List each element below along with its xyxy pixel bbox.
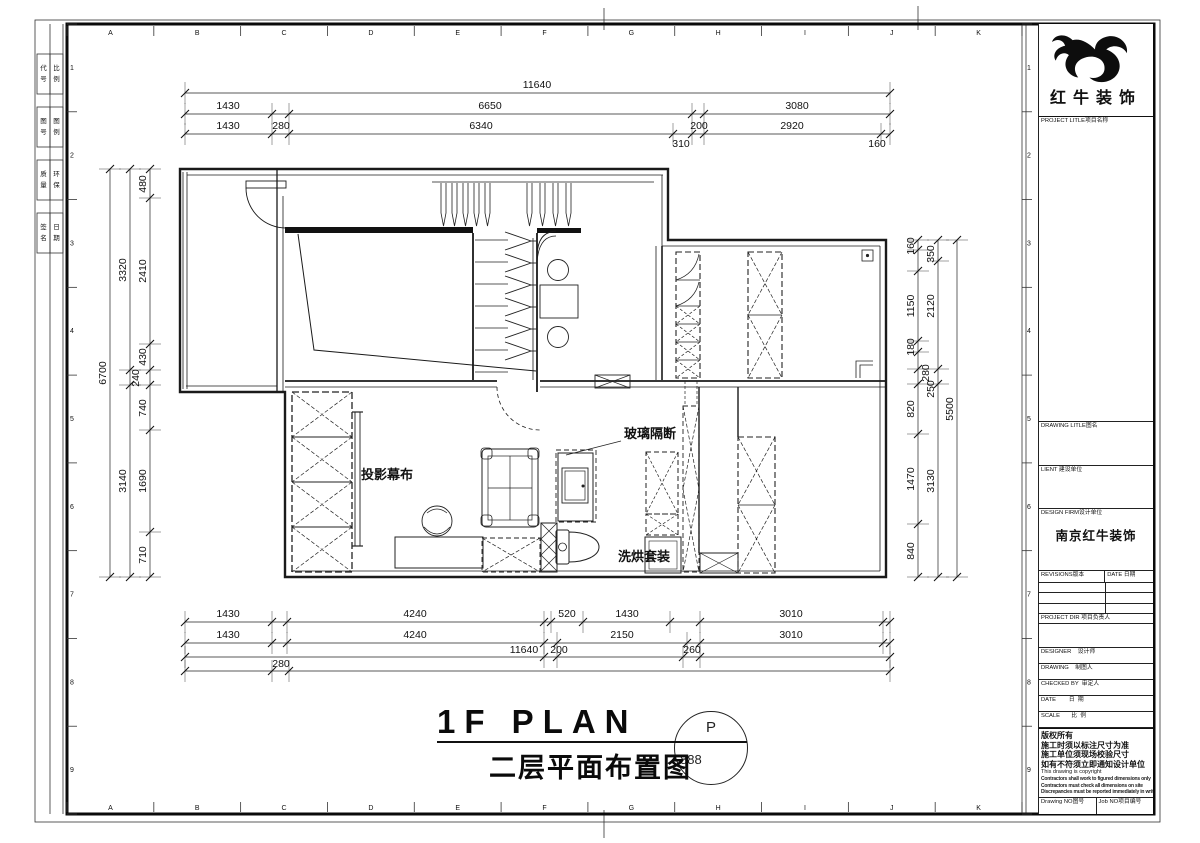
svg-text:1150: 1150 bbox=[905, 295, 917, 318]
copyright-line: 如有不符须立即通知设计单位 bbox=[1041, 760, 1153, 770]
svg-text:2: 2 bbox=[1027, 153, 1031, 160]
svg-text:D: D bbox=[368, 805, 373, 812]
svg-text:环: 环 bbox=[53, 170, 60, 178]
date-field: DATE 日 期 bbox=[1039, 696, 1153, 712]
svg-text:号: 号 bbox=[40, 128, 47, 136]
svg-text:350: 350 bbox=[925, 245, 937, 263]
room-annotations: 投影幕布玻璃隔断洗烘套装 bbox=[361, 426, 676, 564]
svg-text:F: F bbox=[542, 30, 546, 37]
revision-row bbox=[1039, 582, 1153, 592]
drafter-field: DRAWING 制图人 bbox=[1039, 664, 1153, 680]
room-label: 投影幕布 bbox=[361, 467, 413, 482]
designer-label: DESIGNER 设计师 bbox=[1039, 648, 1153, 656]
plan-title-zh: 二层平面布置图 bbox=[489, 746, 747, 785]
svg-text:I: I bbox=[804, 805, 806, 812]
svg-text:260: 260 bbox=[683, 644, 701, 656]
design-firm-name: 南京红牛装饰 bbox=[1039, 525, 1153, 544]
svg-text:11640: 11640 bbox=[510, 644, 539, 656]
project-name-field: PROJECT LITLE项目名称 bbox=[1039, 117, 1153, 422]
title-block: 红牛装饰 PROJECT LITLE项目名称 DRAWING LITLE图名 L… bbox=[1038, 24, 1153, 814]
project-name-label: PROJECT LITLE项目名称 bbox=[1039, 117, 1153, 125]
svg-text:F: F bbox=[542, 805, 546, 812]
svg-text:保: 保 bbox=[53, 180, 60, 189]
svg-text:1430: 1430 bbox=[615, 608, 639, 620]
svg-text:180: 180 bbox=[905, 338, 917, 356]
stairs bbox=[441, 183, 571, 372]
svg-text:3080: 3080 bbox=[785, 100, 809, 112]
drawing-title-field: DRAWING LITLE图名 bbox=[1039, 422, 1153, 466]
svg-text:日: 日 bbox=[53, 223, 60, 231]
svg-text:8: 8 bbox=[1027, 679, 1031, 686]
svg-text:4240: 4240 bbox=[403, 608, 427, 620]
scale-field: SCALE 比 例 bbox=[1039, 712, 1153, 728]
bull-logo-icon bbox=[1044, 27, 1148, 85]
job-no-label: Job NO项目编号 bbox=[1096, 798, 1154, 814]
svg-text:G: G bbox=[629, 30, 634, 37]
svg-text:250: 250 bbox=[925, 380, 937, 398]
svg-text:200: 200 bbox=[690, 120, 708, 132]
svg-text:3: 3 bbox=[70, 240, 74, 247]
client-field: LIENT 建设单位 bbox=[1039, 466, 1153, 509]
svg-text:1690: 1690 bbox=[137, 469, 149, 493]
svg-text:480: 480 bbox=[137, 175, 149, 193]
svg-text:6700: 6700 bbox=[97, 361, 109, 385]
caption-underline bbox=[437, 741, 747, 743]
svg-text:1430: 1430 bbox=[216, 100, 240, 112]
svg-text:质: 质 bbox=[40, 169, 47, 178]
svg-text:6340: 6340 bbox=[469, 120, 493, 132]
svg-text:4: 4 bbox=[1027, 328, 1031, 335]
copyright-line: 施工时须以标注尺寸为准 bbox=[1041, 741, 1153, 751]
border-grid-refs: AABBCCDDEEFFGGHHIIJJKK112233445566778899 bbox=[67, 24, 1032, 814]
svg-text:K: K bbox=[976, 805, 981, 812]
checked-by-label: CHECKED BY 审定人 bbox=[1039, 680, 1153, 688]
checked-by-field: CHECKED BY 审定人 bbox=[1039, 680, 1153, 696]
svg-text:比: 比 bbox=[53, 63, 60, 72]
svg-text:160: 160 bbox=[868, 138, 886, 150]
room-label: 玻璃隔断 bbox=[624, 426, 676, 441]
svg-text:3130: 3130 bbox=[925, 469, 937, 493]
svg-text:3: 3 bbox=[1027, 240, 1031, 247]
revision-row bbox=[1039, 592, 1153, 602]
drafter-label: DRAWING 制图人 bbox=[1039, 664, 1153, 672]
plan-caption: 1F PLAN 二层平面布置图 bbox=[437, 704, 747, 785]
svg-text:6: 6 bbox=[1027, 504, 1031, 511]
svg-text:2920: 2920 bbox=[780, 120, 804, 132]
copyright-line: 版权所有 bbox=[1041, 731, 1153, 741]
svg-text:740: 740 bbox=[137, 399, 149, 417]
copyright-line: Discrepancies must be reported immediate… bbox=[1041, 789, 1153, 796]
svg-text:3010: 3010 bbox=[779, 608, 803, 620]
revisions-label: REVISIONS版本 bbox=[1039, 571, 1104, 582]
svg-text:2410: 2410 bbox=[137, 259, 149, 283]
svg-text:1430: 1430 bbox=[216, 629, 240, 641]
svg-text:D: D bbox=[368, 30, 373, 37]
svg-text:520: 520 bbox=[558, 608, 576, 620]
svg-text:840: 840 bbox=[905, 542, 917, 560]
svg-text:I: I bbox=[804, 30, 806, 37]
copyright-line: 施工单位须现场校验尺寸 bbox=[1041, 750, 1153, 760]
copyright-line: This drawing is copyright bbox=[1041, 769, 1153, 776]
svg-text:1: 1 bbox=[1027, 65, 1031, 72]
svg-text:8: 8 bbox=[70, 679, 74, 686]
svg-text:A: A bbox=[108, 30, 113, 37]
svg-text:1470: 1470 bbox=[905, 467, 917, 491]
copyright-line: Contractors shall work to figured dimens… bbox=[1041, 776, 1153, 783]
drawing-number-row: Drawing NO图号 Job NO项目编号 bbox=[1039, 798, 1153, 814]
svg-text:图: 图 bbox=[53, 117, 60, 125]
svg-text:期: 期 bbox=[53, 234, 60, 242]
svg-text:2120: 2120 bbox=[925, 294, 937, 318]
svg-text:240: 240 bbox=[130, 369, 142, 387]
revision-date-label: DATE 日期 bbox=[1104, 571, 1153, 582]
svg-text:例: 例 bbox=[53, 127, 60, 136]
company-logo bbox=[1039, 24, 1153, 88]
svg-text:280: 280 bbox=[272, 658, 290, 670]
svg-text:3140: 3140 bbox=[117, 469, 129, 493]
copyright-notes: 版权所有施工时须以标注尺寸为准施工单位须现场校验尺寸如有不符须立即通知设计单位T… bbox=[1039, 728, 1153, 798]
plan-walls bbox=[180, 169, 886, 577]
svg-text:H: H bbox=[716, 30, 721, 37]
svg-text:B: B bbox=[195, 805, 200, 812]
svg-text:图: 图 bbox=[40, 117, 47, 125]
date-label: DATE 日 期 bbox=[1039, 696, 1153, 704]
scale-label: SCALE 比 例 bbox=[1039, 712, 1153, 720]
svg-text:K: K bbox=[976, 30, 981, 37]
drawing-no-label: Drawing NO图号 bbox=[1039, 798, 1096, 814]
svg-text:G: G bbox=[629, 805, 634, 812]
svg-text:7: 7 bbox=[1027, 592, 1031, 599]
main-frame bbox=[67, 24, 1154, 814]
svg-text:1: 1 bbox=[70, 65, 74, 72]
svg-text:5: 5 bbox=[70, 416, 74, 423]
client-label: LIENT 建设单位 bbox=[1039, 466, 1153, 474]
svg-text:6: 6 bbox=[70, 504, 74, 511]
svg-text:B: B bbox=[195, 30, 200, 37]
svg-text:9: 9 bbox=[70, 767, 74, 774]
designer-field: DESIGNER 设计师 bbox=[1039, 648, 1153, 664]
svg-text:例: 例 bbox=[53, 74, 60, 83]
svg-text:7: 7 bbox=[70, 592, 74, 599]
svg-text:5: 5 bbox=[1027, 416, 1031, 423]
project-director-field: PROJECT DIR 项目负责人 bbox=[1039, 614, 1153, 648]
svg-text:J: J bbox=[890, 805, 894, 812]
svg-text:1430: 1430 bbox=[216, 608, 240, 620]
revision-row bbox=[1039, 603, 1153, 613]
svg-text:名: 名 bbox=[40, 233, 47, 242]
svg-text:J: J bbox=[890, 30, 894, 37]
svg-text:量: 量 bbox=[40, 181, 47, 189]
svg-text:C: C bbox=[282, 30, 287, 37]
revisions-table: REVISIONS版本 DATE 日期 bbox=[1039, 571, 1153, 614]
svg-text:代: 代 bbox=[40, 63, 47, 72]
svg-text:A: A bbox=[108, 805, 113, 812]
svg-text:2: 2 bbox=[70, 153, 74, 160]
svg-text:6650: 6650 bbox=[478, 100, 502, 112]
svg-text:4240: 4240 bbox=[403, 629, 427, 641]
svg-text:签: 签 bbox=[40, 222, 47, 231]
svg-text:310: 310 bbox=[672, 138, 690, 150]
company-name: 红牛装饰 bbox=[1039, 88, 1153, 117]
plan-fixtures bbox=[292, 250, 873, 573]
svg-text:9: 9 bbox=[1027, 767, 1031, 774]
svg-text:3010: 3010 bbox=[779, 629, 803, 641]
design-firm-field: DESIGN FIRM设计单位 南京红牛装饰 bbox=[1039, 509, 1153, 571]
svg-text:200: 200 bbox=[550, 644, 568, 656]
svg-text:11640: 11640 bbox=[523, 79, 552, 91]
project-director-label: PROJECT DIR 项目负责人 bbox=[1039, 614, 1153, 622]
svg-text:820: 820 bbox=[905, 400, 917, 418]
svg-text:3320: 3320 bbox=[117, 258, 129, 282]
svg-text:2150: 2150 bbox=[610, 629, 634, 641]
svg-text:160: 160 bbox=[905, 237, 917, 255]
svg-text:C: C bbox=[282, 805, 287, 812]
svg-text:710: 710 bbox=[137, 546, 149, 564]
svg-text:1430: 1430 bbox=[216, 120, 240, 132]
svg-text:430: 430 bbox=[137, 348, 149, 366]
svg-text:E: E bbox=[455, 805, 460, 812]
svg-text:4: 4 bbox=[70, 328, 74, 335]
design-firm-label: DESIGN FIRM设计单位 bbox=[1039, 509, 1153, 517]
svg-text:280: 280 bbox=[272, 120, 290, 132]
drawing-title-label: DRAWING LITLE图名 bbox=[1039, 422, 1153, 430]
svg-text:280: 280 bbox=[920, 364, 932, 382]
svg-text:号: 号 bbox=[40, 75, 47, 83]
svg-text:E: E bbox=[455, 30, 460, 37]
svg-text:H: H bbox=[716, 805, 721, 812]
room-label: 洗烘套装 bbox=[618, 549, 670, 564]
plan-title-en: 1F PLAN bbox=[437, 704, 747, 740]
cad-sheet: AABBCCDDEEFFGGHHIIJJKK112233445566778899… bbox=[0, 0, 1200, 843]
svg-text:5500: 5500 bbox=[944, 397, 956, 421]
